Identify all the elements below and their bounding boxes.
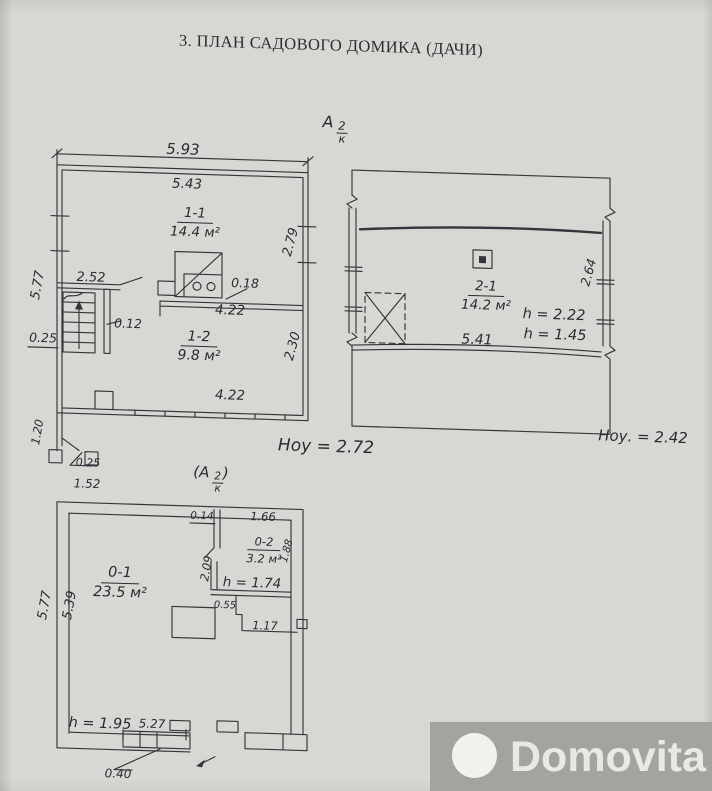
room-id: 1-1 (177, 206, 213, 224)
basement-h-passage: h = 1.74 (223, 576, 282, 591)
drawing-sheet: 3. ПЛАН САДОВОГО ДОМИКА (ДАЧИ) А2к 5.93 … (0, 0, 712, 791)
floor-plan-linework (0, 0, 712, 791)
building-mark-fraction: 2к (212, 471, 223, 494)
room-label-1-2: 1-2 9.8 м² (178, 329, 221, 365)
domovita-brand-text: Domovita (510, 735, 706, 778)
basement-dim-step: 0.55 (214, 601, 236, 612)
floor-height-note-1: Hоу = 2.72 (278, 437, 374, 457)
basement-dim-lower-passage: 1.17 (252, 620, 278, 632)
room-label-1-1: 1-1 14.4 м² (170, 205, 220, 240)
basement-dim-bottom-inner: 5.27 (139, 717, 166, 730)
dim-width-inner: 5.43 (172, 178, 202, 192)
room-area: 9.8 м² (178, 347, 221, 366)
basement-dim-top-inner: 1.66 (250, 511, 276, 523)
dim-partition: 4.22 (215, 304, 245, 318)
dim-porch-step: 0.25 (76, 457, 101, 469)
dim-left-offset: 0.25 (29, 332, 57, 345)
attic-dim-bottom: 5.41 (461, 333, 492, 348)
building-mark-fraction: 2к (336, 121, 347, 145)
first-floor-plan-drawing (28, 148, 316, 473)
domovita-logo-circle-icon (452, 733, 497, 778)
building-mark-letter: А (199, 463, 209, 481)
dim-porch-width: 1.52 (74, 477, 101, 490)
room-label-0-2: 0-2 3.2 м² (246, 535, 281, 565)
basement-h-cellar: h = 1.95 (69, 716, 132, 732)
dim-stairs-width: 2.52 (77, 271, 106, 285)
room-id: 1-2 (181, 329, 218, 348)
room-area: 23.5 м² (93, 583, 147, 603)
dim-stair-wall: 0.12 (114, 317, 142, 330)
building-mark-letter: А (323, 112, 334, 131)
attic-height-ridge: h = 2.22 (523, 307, 586, 323)
building-mark-lower: (А2к) (193, 465, 229, 495)
floor-height-note-2: Hоу. = 2.42 (598, 428, 688, 446)
building-mark-upper: А2к (323, 114, 348, 145)
basement-dim-entry-step: 0.40 (105, 767, 132, 780)
basement-dim-top-stub: 0.14 (190, 511, 213, 522)
domovita-watermark: Domovita (430, 722, 712, 791)
dim-stove-gap: 0.18 (231, 277, 259, 290)
room-label-0-1: 0-1 23.5 м² (93, 565, 147, 603)
room-area: 14.4 м² (170, 222, 220, 240)
scanned-floor-plan-page: 3. ПЛАН САДОВОГО ДОМИКА (ДАЧИ) А2к 5.93 … (0, 0, 712, 791)
attic-height-wall: h = 1.45 (524, 327, 587, 343)
room-id: 0-1 (101, 565, 139, 584)
room-id: 2-1 (468, 279, 504, 297)
room-id: 0-2 (248, 535, 281, 551)
dim-width-outer: 5.93 (166, 142, 199, 158)
room-label-2-1: 2-1 14.2 м² (461, 279, 511, 314)
dim-bottom: 4.22 (215, 389, 245, 403)
room-area: 14.2 м² (461, 295, 511, 313)
room-area: 3.2 м² (246, 550, 281, 566)
